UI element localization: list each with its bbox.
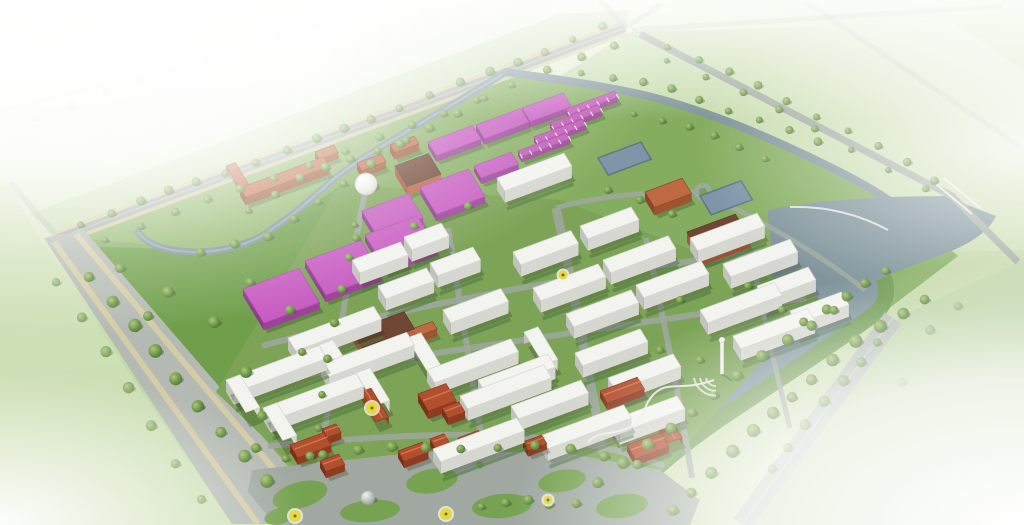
white-fade-layer — [0, 0, 1024, 525]
aerial-site-rendering — [0, 0, 1024, 525]
fade-bottom-left — [0, 0, 1024, 525]
rendering-canvas — [0, 0, 1024, 525]
